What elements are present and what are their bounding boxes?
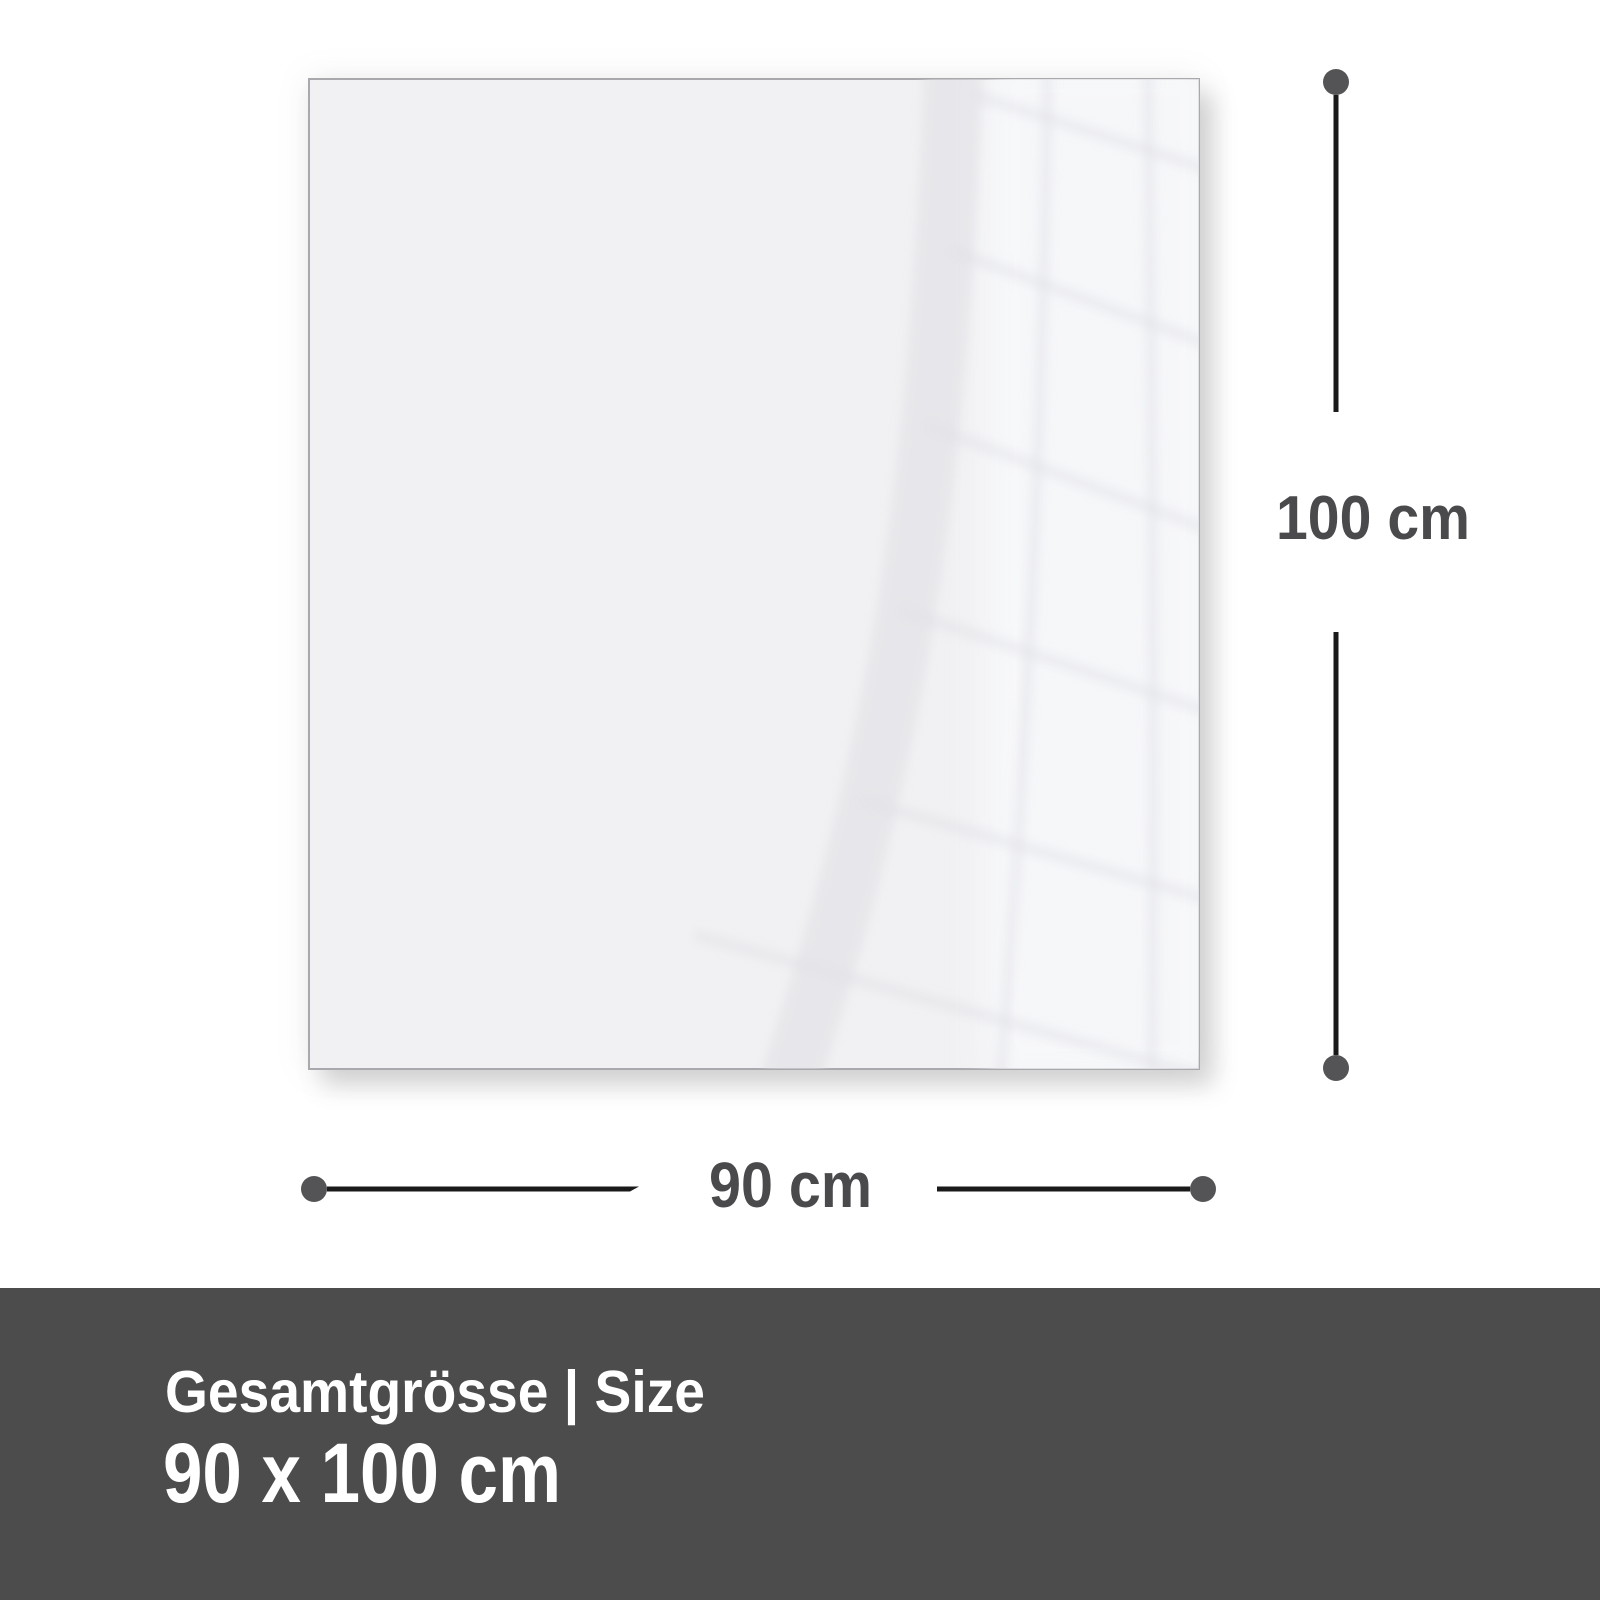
- svg-text:100 cm: 100 cm: [1276, 484, 1470, 553]
- svg-text:90 x 100 cm: 90 x 100 cm: [163, 1426, 561, 1520]
- svg-text:90 cm: 90 cm: [709, 1149, 872, 1221]
- svg-text:Gesamtgrösse | Size: Gesamtgrösse | Size: [165, 1359, 705, 1426]
